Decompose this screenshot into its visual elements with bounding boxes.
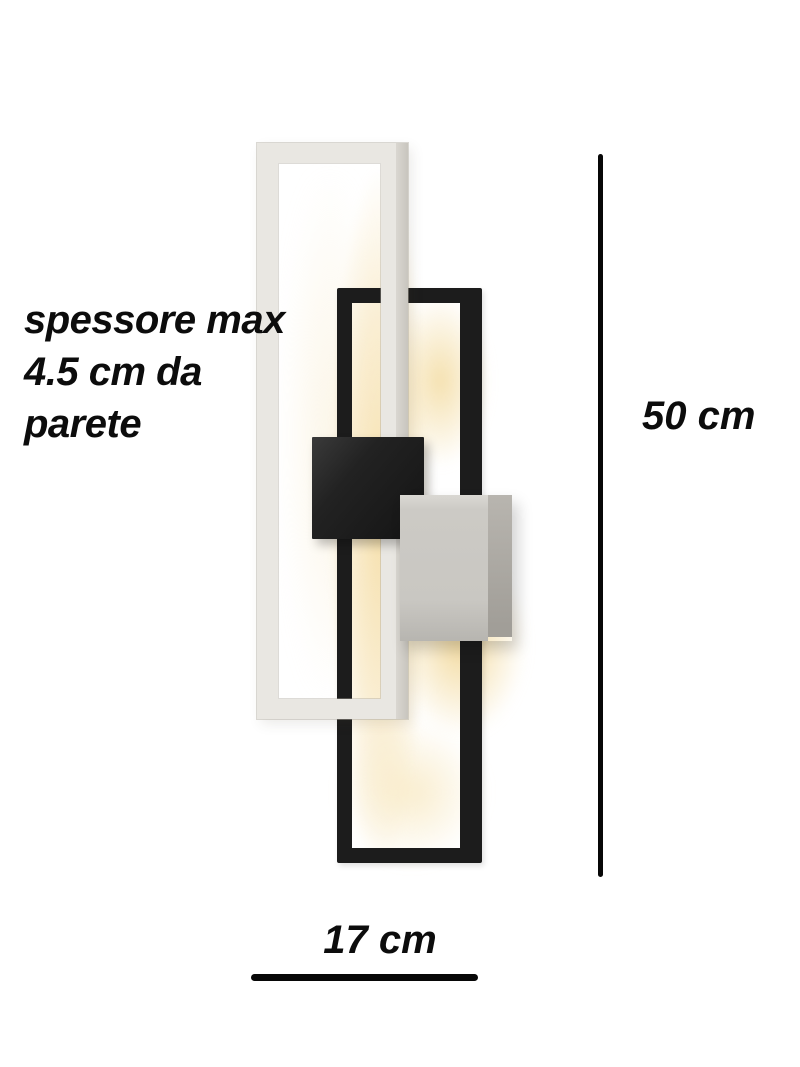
height-dimension-label: 50 cm	[642, 394, 755, 439]
width-dimension-label: 17 cm	[305, 918, 455, 963]
product-dimension-illustration: spessore max 4.5 cm da parete 50 cm 17 c…	[0, 0, 800, 1067]
thickness-note: spessore max 4.5 cm da parete	[24, 294, 285, 450]
silver-mount-block	[400, 495, 512, 641]
silver-mount-block-front-face	[400, 495, 488, 641]
thickness-note-line-3: parete	[24, 398, 285, 450]
thickness-note-line-1: spessore max	[24, 294, 285, 346]
width-dimension-line	[251, 974, 478, 981]
thickness-note-line-2: 4.5 cm da	[24, 346, 285, 398]
silver-mount-block-side-face	[488, 495, 512, 637]
height-dimension-line	[598, 154, 603, 877]
